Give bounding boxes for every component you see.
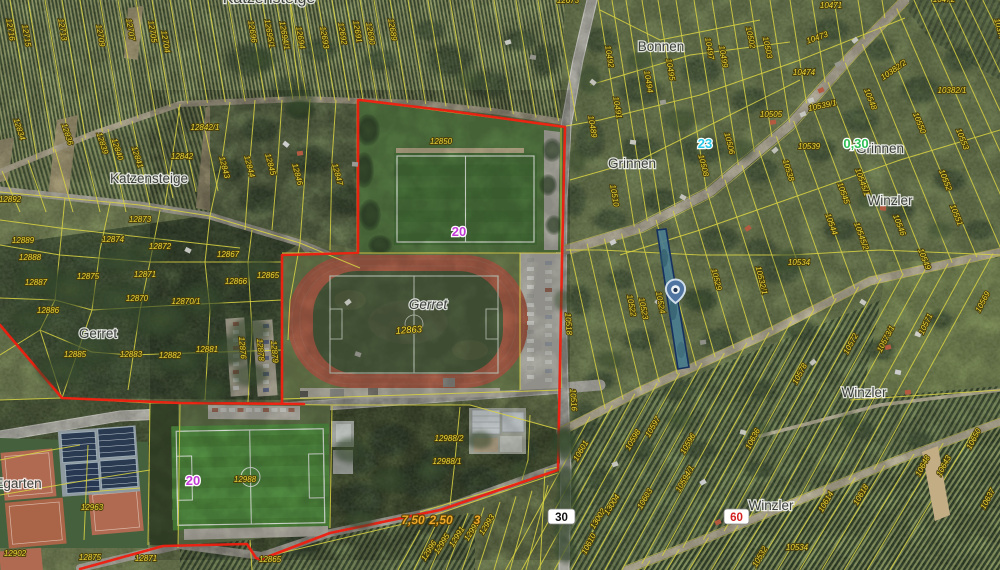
svg-text:12885: 12885 [64, 350, 87, 359]
svg-text:Grinnen: Grinnen [608, 156, 656, 171]
svg-text:Katzensteige: Katzensteige [223, 0, 316, 7]
svg-text:Egarten: Egarten [0, 476, 42, 491]
svg-text:12867: 12867 [217, 250, 240, 259]
svg-text:30: 30 [555, 512, 568, 524]
svg-text:12863: 12863 [395, 324, 423, 337]
svg-text:10471: 10471 [820, 1, 842, 10]
svg-text:12866: 12866 [225, 277, 248, 286]
svg-text:10534: 10534 [786, 543, 809, 552]
svg-text:Winzler: Winzler [841, 385, 887, 400]
svg-text:12886: 12886 [37, 306, 60, 315]
svg-text:12865: 12865 [259, 555, 282, 564]
svg-text:Winzler: Winzler [867, 193, 913, 208]
svg-text:12875: 12875 [79, 553, 102, 562]
svg-text:12873: 12873 [129, 215, 152, 224]
svg-text:Gerret: Gerret [409, 297, 449, 312]
svg-text:12871: 12871 [135, 554, 157, 563]
svg-text:10472: 10472 [933, 0, 956, 4]
svg-text:12888: 12888 [19, 253, 42, 262]
svg-text:12883: 12883 [120, 350, 143, 359]
svg-text:Gerret: Gerret [79, 326, 118, 341]
svg-text:Katzensteige: Katzensteige [110, 171, 188, 186]
svg-text:12673: 12673 [557, 0, 580, 5]
svg-text:3: 3 [474, 513, 481, 527]
svg-text:20: 20 [186, 473, 200, 488]
svg-text:10518: 10518 [563, 312, 574, 335]
svg-text:12881: 12881 [196, 345, 218, 354]
svg-text:10534: 10534 [788, 258, 811, 267]
svg-text:12988: 12988 [234, 475, 257, 484]
svg-text:12988/1: 12988/1 [433, 457, 462, 466]
svg-text:10382/1: 10382/1 [938, 86, 967, 95]
svg-text:10539: 10539 [798, 142, 821, 151]
svg-text:12842: 12842 [171, 152, 194, 161]
svg-text:7,50: 7,50 [401, 513, 425, 527]
svg-text:60: 60 [730, 512, 743, 524]
svg-text:Winzler: Winzler [748, 498, 794, 513]
svg-text:12874: 12874 [102, 235, 125, 244]
svg-text:12889: 12889 [12, 236, 35, 245]
svg-text:12892: 12892 [0, 195, 22, 204]
svg-text:12988/2: 12988/2 [435, 434, 464, 443]
svg-text:12850: 12850 [430, 137, 453, 146]
svg-text:12871: 12871 [134, 270, 156, 279]
svg-text:0,30: 0,30 [843, 136, 868, 151]
svg-text:12870: 12870 [126, 294, 149, 303]
svg-text:Bonnen: Bonnen [638, 39, 685, 54]
svg-text:10474: 10474 [793, 68, 816, 77]
svg-text:12963: 12963 [81, 503, 104, 512]
svg-text:12882: 12882 [159, 351, 182, 360]
svg-text:12902: 12902 [4, 549, 27, 558]
svg-text:10516: 10516 [568, 388, 579, 411]
svg-text:10505: 10505 [760, 110, 783, 119]
svg-text:20: 20 [452, 224, 466, 239]
svg-text:12865: 12865 [257, 271, 280, 280]
svg-text:12887: 12887 [25, 278, 48, 287]
svg-text:12875: 12875 [77, 272, 100, 281]
svg-text:12870/1: 12870/1 [172, 297, 201, 306]
svg-text:12842/1: 12842/1 [191, 123, 220, 132]
svg-text:23: 23 [698, 136, 712, 151]
svg-text:2,50: 2,50 [428, 513, 453, 527]
svg-text:12872: 12872 [149, 242, 172, 251]
